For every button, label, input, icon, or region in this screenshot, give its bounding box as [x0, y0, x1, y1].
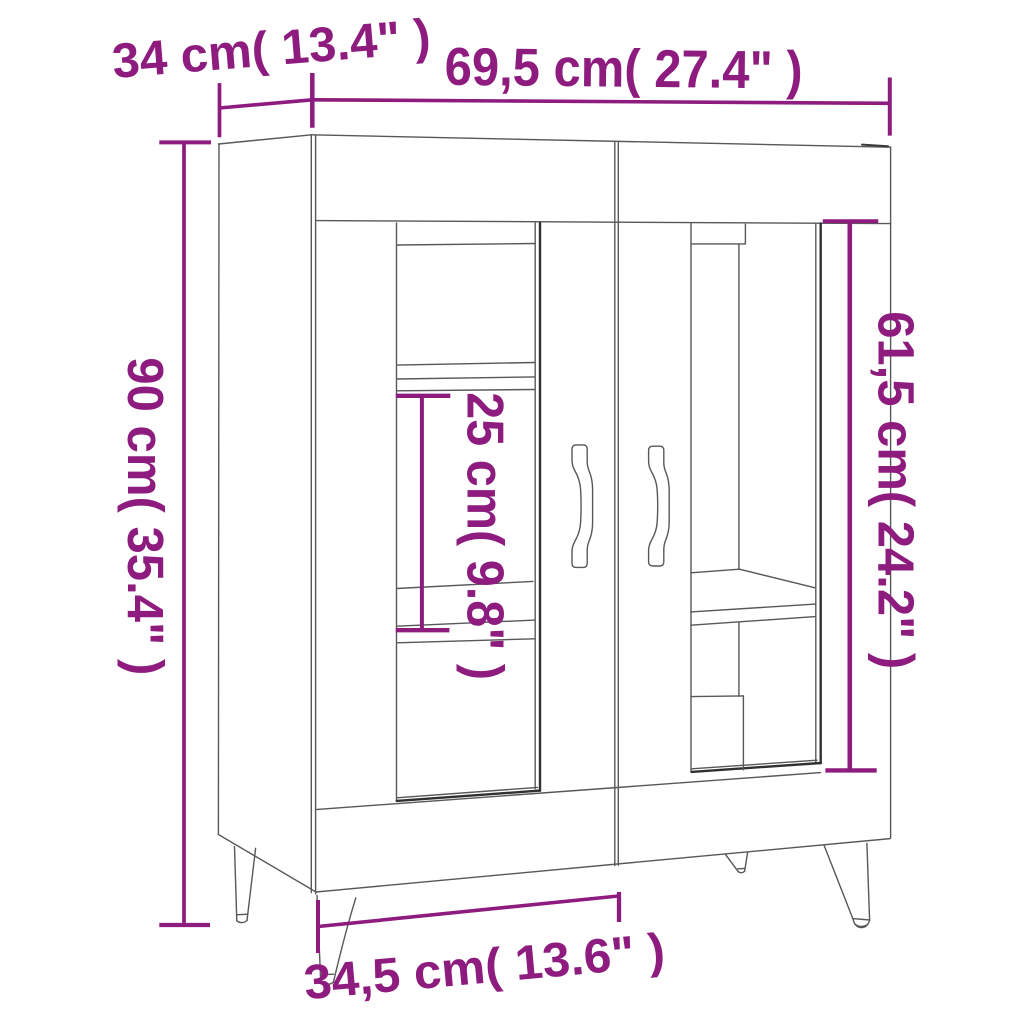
svg-text:25 cm( 9.8" ): 25 cm( 9.8" ): [456, 392, 514, 680]
svg-text:61,5 cm( 24.2" ): 61,5 cm( 24.2" ): [867, 311, 924, 669]
svg-text:69,5 cm( 27.4" ): 69,5 cm( 27.4" ): [444, 38, 803, 101]
svg-text:90 cm( 35.4" ): 90 cm( 35.4" ): [117, 357, 174, 675]
